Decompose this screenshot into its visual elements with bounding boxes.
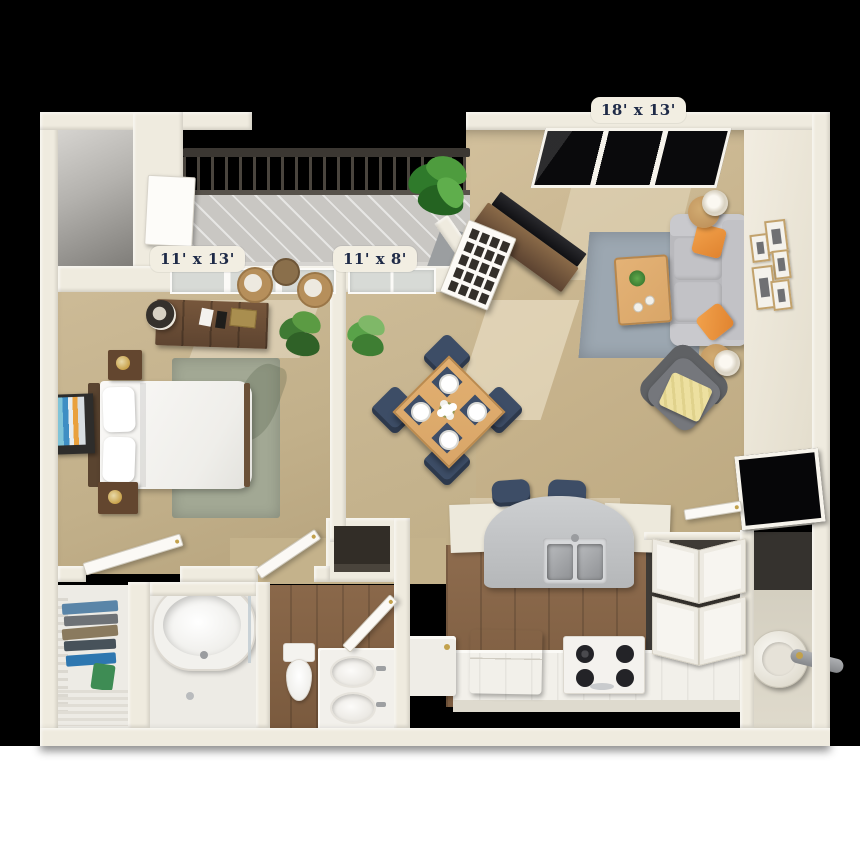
bed-pillow-bottom — [102, 436, 136, 482]
shower-glass-panel — [248, 585, 251, 663]
bedroom-bottom-wall-seg — [180, 566, 258, 582]
living-room-dimension-label: 18' x 13' — [591, 97, 686, 123]
bathroom-kitchen-wall — [394, 518, 410, 728]
water-closet-dark-recess — [746, 532, 812, 590]
bedroom-plant — [276, 310, 324, 364]
washer-knob — [444, 644, 450, 650]
bed — [88, 381, 252, 489]
floor-plan: 18' x 13' 11' x 13' 11' x 8' — [0, 0, 860, 860]
dinner-plate — [439, 430, 459, 450]
tub-toilet-divider-wall — [256, 582, 270, 728]
bedroom-bottom-wall-seg — [314, 566, 330, 582]
coffee-table-cup — [633, 302, 644, 313]
nightstand-bottom-lamp — [108, 490, 122, 504]
vanity-sink — [330, 692, 376, 724]
closet-shoe-rack — [58, 690, 132, 726]
dining-centerpiece-flowers — [441, 404, 453, 416]
water-heater-fitting — [796, 652, 803, 659]
recess-balcony-door-panel — [144, 175, 196, 247]
coffee-table-plant — [629, 270, 646, 287]
linen-closet-interior — [334, 526, 390, 572]
coffee-table — [614, 254, 673, 326]
bathtub-faucet — [200, 651, 208, 659]
bedroom-bottom-wall-seg — [58, 566, 86, 582]
refrigerator — [469, 629, 542, 694]
entry-door-grid — [469, 228, 480, 240]
gallery-frame — [770, 279, 793, 311]
toilet — [281, 643, 315, 707]
bathroom-vanity — [318, 648, 396, 730]
closet-right-wall — [128, 582, 150, 728]
sofa — [670, 214, 748, 346]
stove-drip-tray — [590, 683, 614, 690]
pantry-bifold-door-panel — [652, 596, 699, 666]
sink-faucet — [571, 534, 579, 542]
dresser-item-tray — [229, 308, 257, 329]
bar-double-sink — [543, 538, 607, 584]
balcony-plant — [400, 155, 470, 235]
closet-green-bag — [90, 663, 115, 692]
dinner-plate — [439, 374, 459, 394]
sink-basin-right — [577, 544, 603, 580]
table-lamp-top — [702, 190, 728, 216]
outer-wall-bottom — [40, 728, 830, 746]
pantry-bifold-door-panel — [652, 538, 699, 604]
pantry-frame-top — [644, 532, 748, 540]
wall-art-canvas — [56, 397, 86, 446]
bedroom-wall-art — [53, 393, 95, 454]
dinner-plate — [467, 402, 487, 422]
vanity-faucet — [376, 702, 386, 707]
shower-drain — [186, 692, 194, 700]
kitchen-counter-front-face — [453, 700, 747, 712]
bedroom-dimension-label: 11' x 13' — [150, 246, 245, 272]
balcony-bistro-chair-left-cushion — [244, 274, 262, 292]
bed-footboard — [244, 383, 250, 487]
table-lamp-bottom — [714, 350, 740, 376]
bathtub-basin — [163, 594, 241, 656]
gallery-frame — [771, 249, 791, 280]
balcony-bistro-table — [272, 258, 300, 286]
toilet-bowl — [286, 659, 312, 701]
storage-recess-interior — [58, 125, 135, 267]
outer-wall-left — [40, 112, 58, 746]
coffee-table-cup — [644, 295, 655, 306]
dining-plant — [344, 314, 388, 364]
skylight-window — [531, 128, 732, 188]
outer-wall-right — [812, 112, 830, 746]
bathroom-top-wall — [150, 582, 258, 596]
dining-dimension-label: 11' x 8' — [333, 246, 417, 272]
bed-duvet-fold — [140, 383, 146, 487]
vanity-faucet — [376, 666, 386, 671]
background-lower — [0, 746, 860, 860]
balcony-bistro-chair-right-cushion — [304, 279, 322, 297]
bathtub — [152, 585, 256, 671]
washer-unit — [404, 636, 456, 696]
sink-basin-left — [547, 544, 573, 580]
bedroom-right-wall — [330, 266, 346, 542]
vanity-sink — [330, 656, 376, 688]
living-right-window — [734, 448, 825, 530]
stove-range — [563, 636, 645, 694]
stove-burner — [576, 645, 594, 663]
dinner-plate — [411, 402, 431, 422]
nightstand-top-lamp — [116, 356, 130, 370]
bedroom-cylinder-lamp — [146, 300, 176, 330]
bed-pillow-top — [102, 386, 136, 432]
pantry-bifold-door-panel — [699, 596, 746, 666]
